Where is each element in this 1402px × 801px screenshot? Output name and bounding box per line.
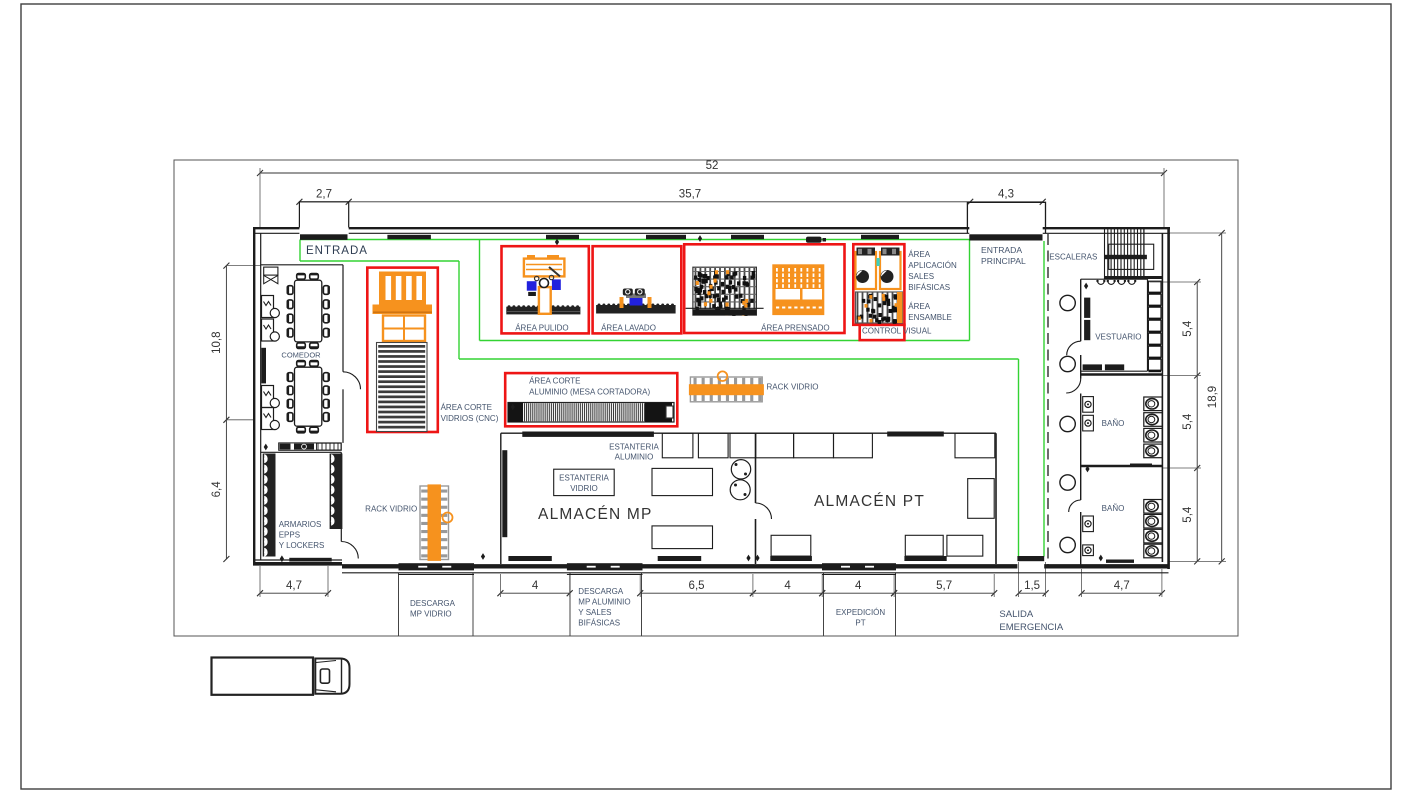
svg-text:4: 4 [784, 580, 791, 592]
svg-text:PT: PT [855, 619, 865, 628]
svg-text:35,7: 35,7 [679, 189, 701, 201]
svg-text:EPPS: EPPS [279, 531, 300, 540]
svg-text:CONTROL VISUAL: CONTROL VISUAL [862, 327, 932, 336]
svg-text:4,3: 4,3 [998, 189, 1014, 201]
svg-text:5,7: 5,7 [936, 580, 952, 592]
svg-text:ALMACÉN MP: ALMACÉN MP [538, 506, 653, 523]
svg-text:COMEDOR: COMEDOR [281, 351, 321, 360]
svg-text:ÁREA PULIDO: ÁREA PULIDO [515, 324, 568, 333]
svg-text:ENTRADA: ENTRADA [981, 245, 1022, 255]
svg-text:BAÑO: BAÑO [1102, 504, 1125, 513]
svg-text:DESCARGA: DESCARGA [578, 587, 624, 596]
svg-text:4: 4 [855, 580, 862, 592]
svg-text:10,8: 10,8 [211, 332, 223, 354]
svg-text:ÁREA LAVADO: ÁREA LAVADO [601, 324, 656, 333]
svg-text:ESCALERAS: ESCALERAS [1049, 253, 1097, 262]
svg-text:ÁREA: ÁREA [908, 250, 930, 259]
svg-text:2,7: 2,7 [316, 189, 332, 201]
svg-text:ALUMINIO (MESA CORTADORA): ALUMINIO (MESA CORTADORA) [529, 388, 650, 397]
svg-text:MP ALUMINIO: MP ALUMINIO [578, 598, 630, 607]
svg-text:VIDRIOS (CNC): VIDRIOS (CNC) [441, 414, 499, 423]
svg-text:ESTANTERIA: ESTANTERIA [559, 474, 609, 483]
svg-text:PRINCIPAL: PRINCIPAL [981, 256, 1026, 266]
svg-text:ALMACÉN PT: ALMACÉN PT [814, 493, 925, 510]
svg-text:ESTANTERIA: ESTANTERIA [609, 443, 659, 452]
svg-text:5,4: 5,4 [1182, 413, 1194, 430]
svg-text:ARMARIOS: ARMARIOS [279, 520, 322, 529]
svg-text:52: 52 [706, 160, 719, 172]
svg-text:4: 4 [532, 580, 539, 592]
svg-text:ÁREA CORTE: ÁREA CORTE [529, 377, 580, 386]
svg-text:4,7: 4,7 [286, 580, 302, 592]
svg-text:BAÑO: BAÑO [1102, 419, 1125, 428]
svg-text:APLICACIÓN: APLICACIÓN [908, 261, 957, 270]
svg-text:5,4: 5,4 [1182, 320, 1194, 337]
svg-text:5,4: 5,4 [1182, 506, 1194, 523]
svg-text:6,5: 6,5 [689, 580, 705, 592]
svg-text:Y SALES: Y SALES [578, 608, 611, 617]
svg-text:ÁREA CORTE: ÁREA CORTE [441, 403, 492, 412]
svg-text:MP VIDRIO: MP VIDRIO [410, 610, 452, 619]
svg-text:EMERGENCIA: EMERGENCIA [999, 622, 1064, 633]
svg-text:RACK VIDRIO: RACK VIDRIO [767, 382, 819, 391]
svg-text:VESTUARIO: VESTUARIO [1095, 333, 1141, 342]
svg-text:VIDRIO: VIDRIO [570, 484, 598, 493]
svg-text:ENSAMBLE: ENSAMBLE [908, 313, 952, 322]
svg-text:EXPEDICIÓN: EXPEDICIÓN [836, 608, 886, 617]
svg-text:Y LOCKERS: Y LOCKERS [279, 541, 325, 550]
svg-text:ENTRADA: ENTRADA [306, 245, 368, 257]
svg-text:ÁREA: ÁREA [908, 302, 930, 311]
svg-text:BIFÁSICAS: BIFÁSICAS [908, 283, 950, 292]
svg-text:4,7: 4,7 [1114, 580, 1130, 592]
svg-text:1,5: 1,5 [1024, 580, 1040, 592]
svg-text:SALES: SALES [908, 272, 934, 281]
svg-text:SALIDA: SALIDA [999, 609, 1033, 620]
svg-text:RACK VIDRIO: RACK VIDRIO [365, 504, 417, 513]
svg-text:DESCARGA: DESCARGA [410, 599, 456, 608]
svg-text:BIFÁSICAS: BIFÁSICAS [578, 619, 620, 628]
svg-text:ÁREA PRENSADO: ÁREA PRENSADO [761, 324, 829, 333]
svg-text:6,4: 6,4 [211, 481, 223, 498]
svg-text:18,9: 18,9 [1207, 386, 1219, 408]
svg-text:ALUMINIO: ALUMINIO [615, 453, 654, 462]
